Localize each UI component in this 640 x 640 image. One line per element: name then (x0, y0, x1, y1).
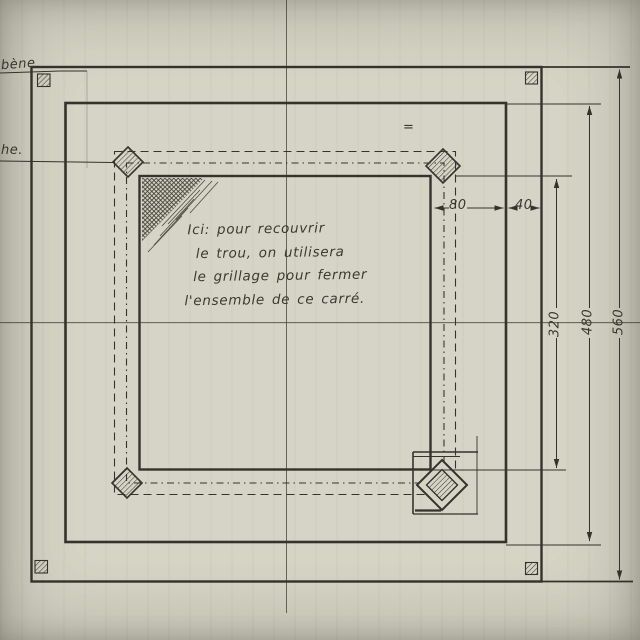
equals-mark: = (403, 121, 414, 134)
dim-label-560: 560 (612, 309, 625, 335)
margin-label-middle: he. (1, 144, 23, 157)
dim-label-480: 480 (582, 309, 595, 335)
handwritten-note: Ici: pour recouvrir le trou, on utiliser… (183, 217, 367, 314)
extension-lines (431, 67, 633, 582)
anchor-square-bottom-left (35, 561, 48, 574)
anchor-square-top-left (38, 74, 51, 87)
dim-label-320: 320 (549, 311, 562, 337)
note-line-1: Ici: pour recouvrir (187, 217, 366, 243)
dim-label-80: 80 (449, 199, 467, 212)
drawing-canvas (0, 0, 640, 640)
note-line-3: le grillage pour fermer (193, 264, 367, 290)
anchor-square-top-right (526, 72, 538, 84)
diamond-bottom-left (112, 468, 142, 498)
diamond-bottom-right-detail (413, 436, 478, 514)
anchor-square-bottom-right (526, 563, 538, 575)
margin-label-top: bène (1, 57, 36, 72)
sketch-page: bène he. = Ici: pour recouvrir le trou, … (0, 0, 640, 640)
dim-label-40: 40 (515, 199, 533, 212)
note-line-2: le trou, on utilisera (196, 240, 367, 266)
note-line-4: l'ensemble de ce carré. (184, 287, 367, 313)
